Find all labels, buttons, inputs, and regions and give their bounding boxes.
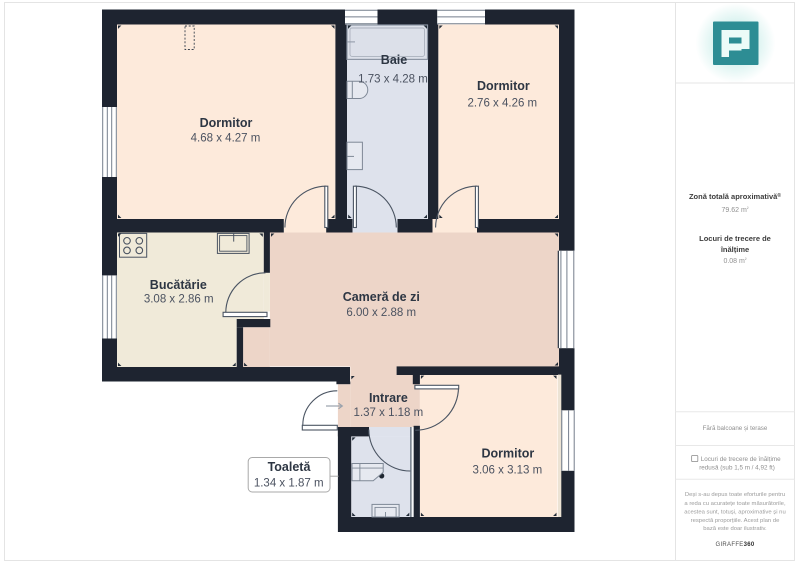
svg-text:înălțime: înălțime	[720, 245, 749, 254]
svg-text:2.76 x 4.26 m: 2.76 x 4.26 m	[467, 97, 537, 109]
svg-text:3.08 x 2.86 m: 3.08 x 2.86 m	[144, 293, 214, 305]
svg-text:Dormitor: Dormitor	[482, 446, 535, 460]
svg-text:Intrare: Intrare	[369, 391, 408, 405]
svg-text:Zonă totală aproximativă®: Zonă totală aproximativă®	[689, 192, 781, 201]
svg-text:3.06 x 3.13 m: 3.06 x 3.13 m	[473, 465, 543, 477]
svg-text:redusă (sub 1,5 m / 4,92 ft): redusă (sub 1,5 m / 4,92 ft)	[699, 464, 775, 471]
svg-text:Baie: Baie	[381, 53, 407, 67]
svg-text:Locuri de trecere de: Locuri de trecere de	[699, 234, 771, 243]
svg-text:Fără balcoane și terase: Fără balcoane și terase	[703, 425, 768, 432]
svg-text:Deși s-au depus toate eforturi: Deși s-au depus toate eforturile pentru	[685, 492, 785, 498]
svg-text:1.73 x 4.28 m: 1.73 x 4.28 m	[358, 74, 428, 86]
svg-text:GIRAFFE360: GIRAFFE360	[715, 542, 754, 548]
svg-text:Toaletă: Toaletă	[268, 460, 312, 474]
svg-text:1.34 x 1.87 m: 1.34 x 1.87 m	[254, 478, 324, 490]
svg-text:4.68 x 4.27 m: 4.68 x 4.27 m	[191, 133, 261, 145]
svg-text:a reda cu acuratețe toate măsu: a reda cu acuratețe toate măsurătorile,	[684, 501, 786, 507]
svg-text:Dormitor: Dormitor	[200, 116, 253, 130]
svg-text:Locuri de trecere de înălțime: Locuri de trecere de înălțime	[701, 456, 781, 463]
svg-text:acestea sunt, totuși, aproxima: acestea sunt, totuși, aproximative și nu	[684, 510, 786, 516]
svg-text:1.37 x 1.18 m: 1.37 x 1.18 m	[354, 407, 424, 419]
svg-text:Cameră de zi: Cameră de zi	[343, 290, 420, 304]
svg-text:Dormitor: Dormitor	[477, 79, 530, 93]
svg-text:79.62 m²: 79.62 m²	[722, 206, 749, 214]
svg-text:0.08 m²: 0.08 m²	[723, 257, 746, 265]
svg-text:6.00 x 2.88 m: 6.00 x 2.88 m	[346, 307, 416, 319]
svg-text:Bucătărie: Bucătărie	[150, 278, 207, 292]
svg-text:respectă proporțiile. Acest pl: respectă proporțiile. Acest plan de	[691, 518, 780, 524]
svg-text:bază este doar ilustrativ.: bază este doar ilustrativ.	[703, 526, 767, 532]
